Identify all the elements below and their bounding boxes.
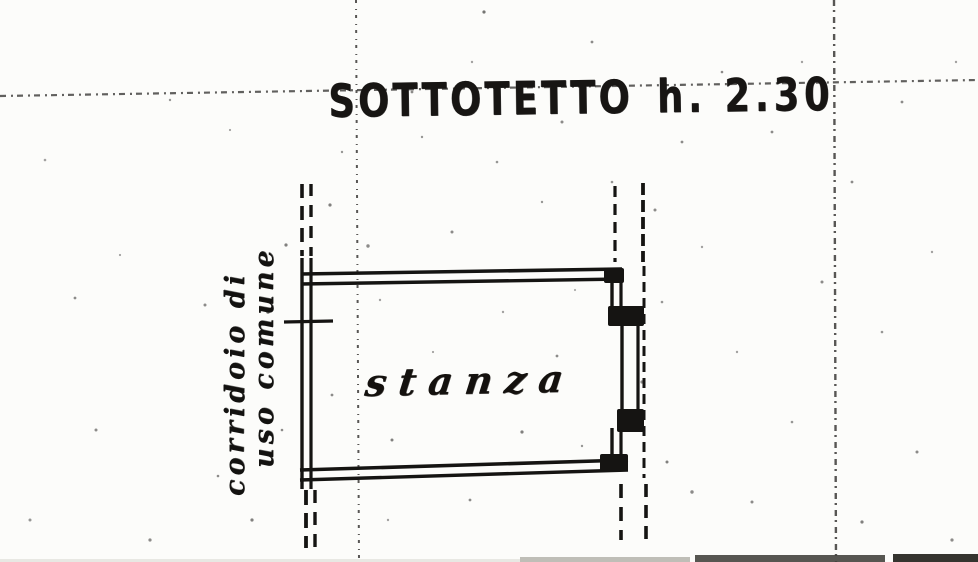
door-jamb-upper xyxy=(608,306,644,326)
right-wall-dashed-below xyxy=(621,484,646,547)
room-label: stanza xyxy=(363,356,578,405)
left-wall-door-tick xyxy=(284,321,333,322)
left-wall xyxy=(302,184,315,548)
corridor-label: corridoio di uso comune xyxy=(221,196,279,496)
right-wall xyxy=(600,266,644,478)
bottom-right-corner-blob xyxy=(600,454,628,471)
scanned-floorplan-page: SOTTOTETTO h. 2.30 stanza corridoio di u… xyxy=(0,0,978,562)
top-wall xyxy=(301,269,622,284)
door-jamb-lower xyxy=(617,409,644,432)
corridor-label-line1: corridoio di xyxy=(221,196,250,496)
top-right-corner-blob xyxy=(604,268,624,283)
plan-title-text: SOTTOTETTO xyxy=(328,70,633,128)
plan-title-height-note: h. 2.30 xyxy=(657,67,835,123)
scan-edge-band xyxy=(0,554,978,562)
corridor-label-line2: uso comune xyxy=(250,196,279,496)
right-wall-dashed-above xyxy=(615,183,643,262)
plan-title: SOTTOTETTO h. 2.30 xyxy=(328,67,835,128)
bottom-wall xyxy=(300,460,628,480)
fold-line-vertical-right xyxy=(834,0,836,562)
